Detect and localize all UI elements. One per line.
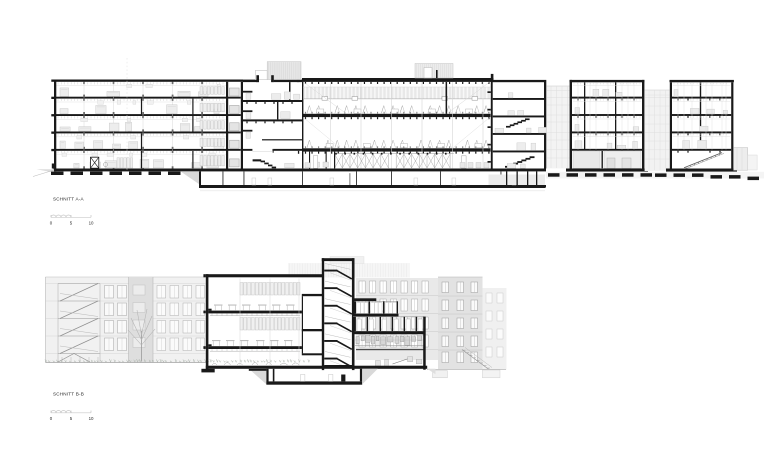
svg-text:SCHNITT A-A: SCHNITT A-A	[53, 197, 84, 202]
svg-text:10: 10	[89, 221, 94, 226]
svg-text:SCHNITT B-B: SCHNITT B-B	[53, 392, 84, 397]
svg-text:10: 10	[89, 416, 94, 421]
